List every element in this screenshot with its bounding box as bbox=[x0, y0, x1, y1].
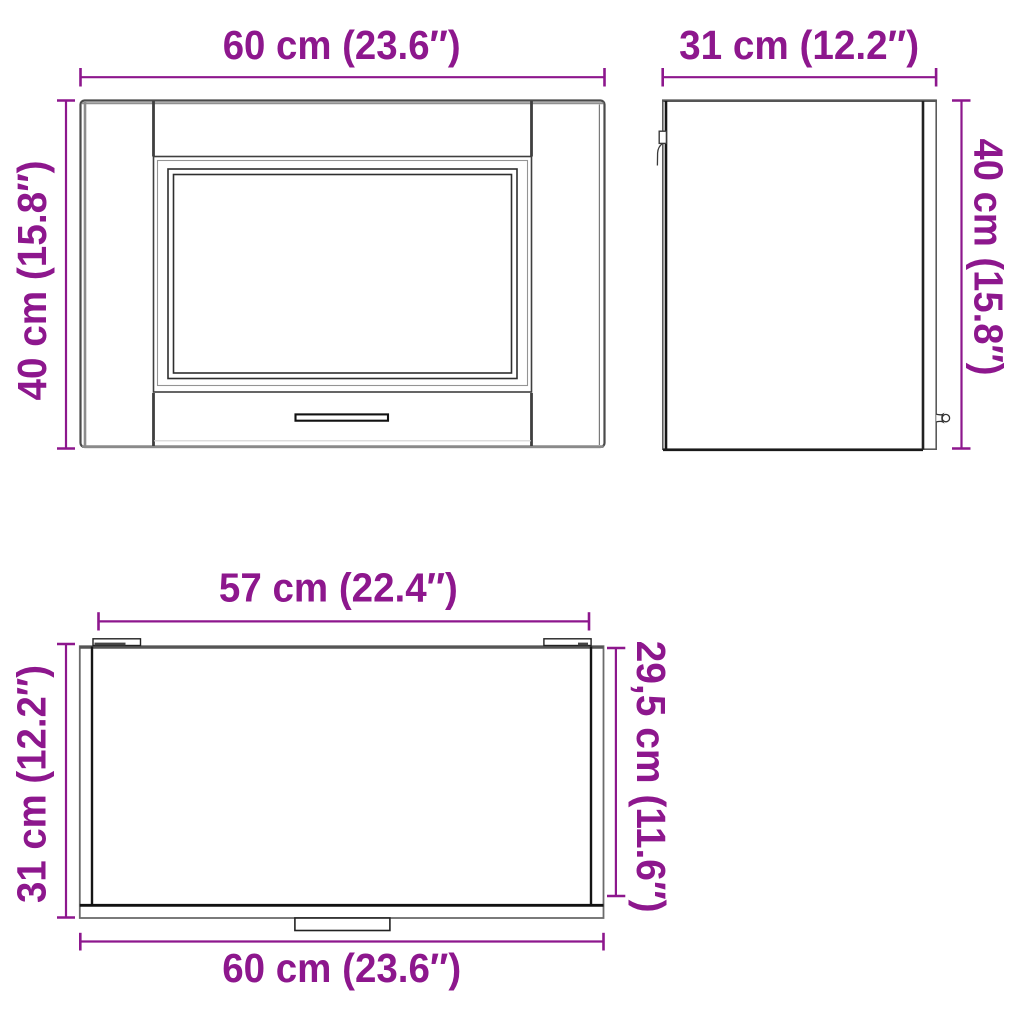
svg-text:57 cm (22.4″): 57 cm (22.4″) bbox=[219, 565, 458, 611]
svg-text:40 cm (15.8″): 40 cm (15.8″) bbox=[966, 139, 1012, 376]
svg-text:31 cm (12.2″): 31 cm (12.2″) bbox=[679, 22, 919, 68]
svg-text:40 cm (15.8″): 40 cm (15.8″) bbox=[9, 161, 55, 401]
svg-text:29,5 cm (11.6″): 29,5 cm (11.6″) bbox=[628, 641, 674, 913]
svg-text:60 cm (23.6″): 60 cm (23.6″) bbox=[223, 22, 461, 68]
svg-text:31 cm (12.2″): 31 cm (12.2″) bbox=[9, 665, 55, 903]
svg-text:60 cm (23.6″): 60 cm (23.6″) bbox=[222, 945, 461, 991]
